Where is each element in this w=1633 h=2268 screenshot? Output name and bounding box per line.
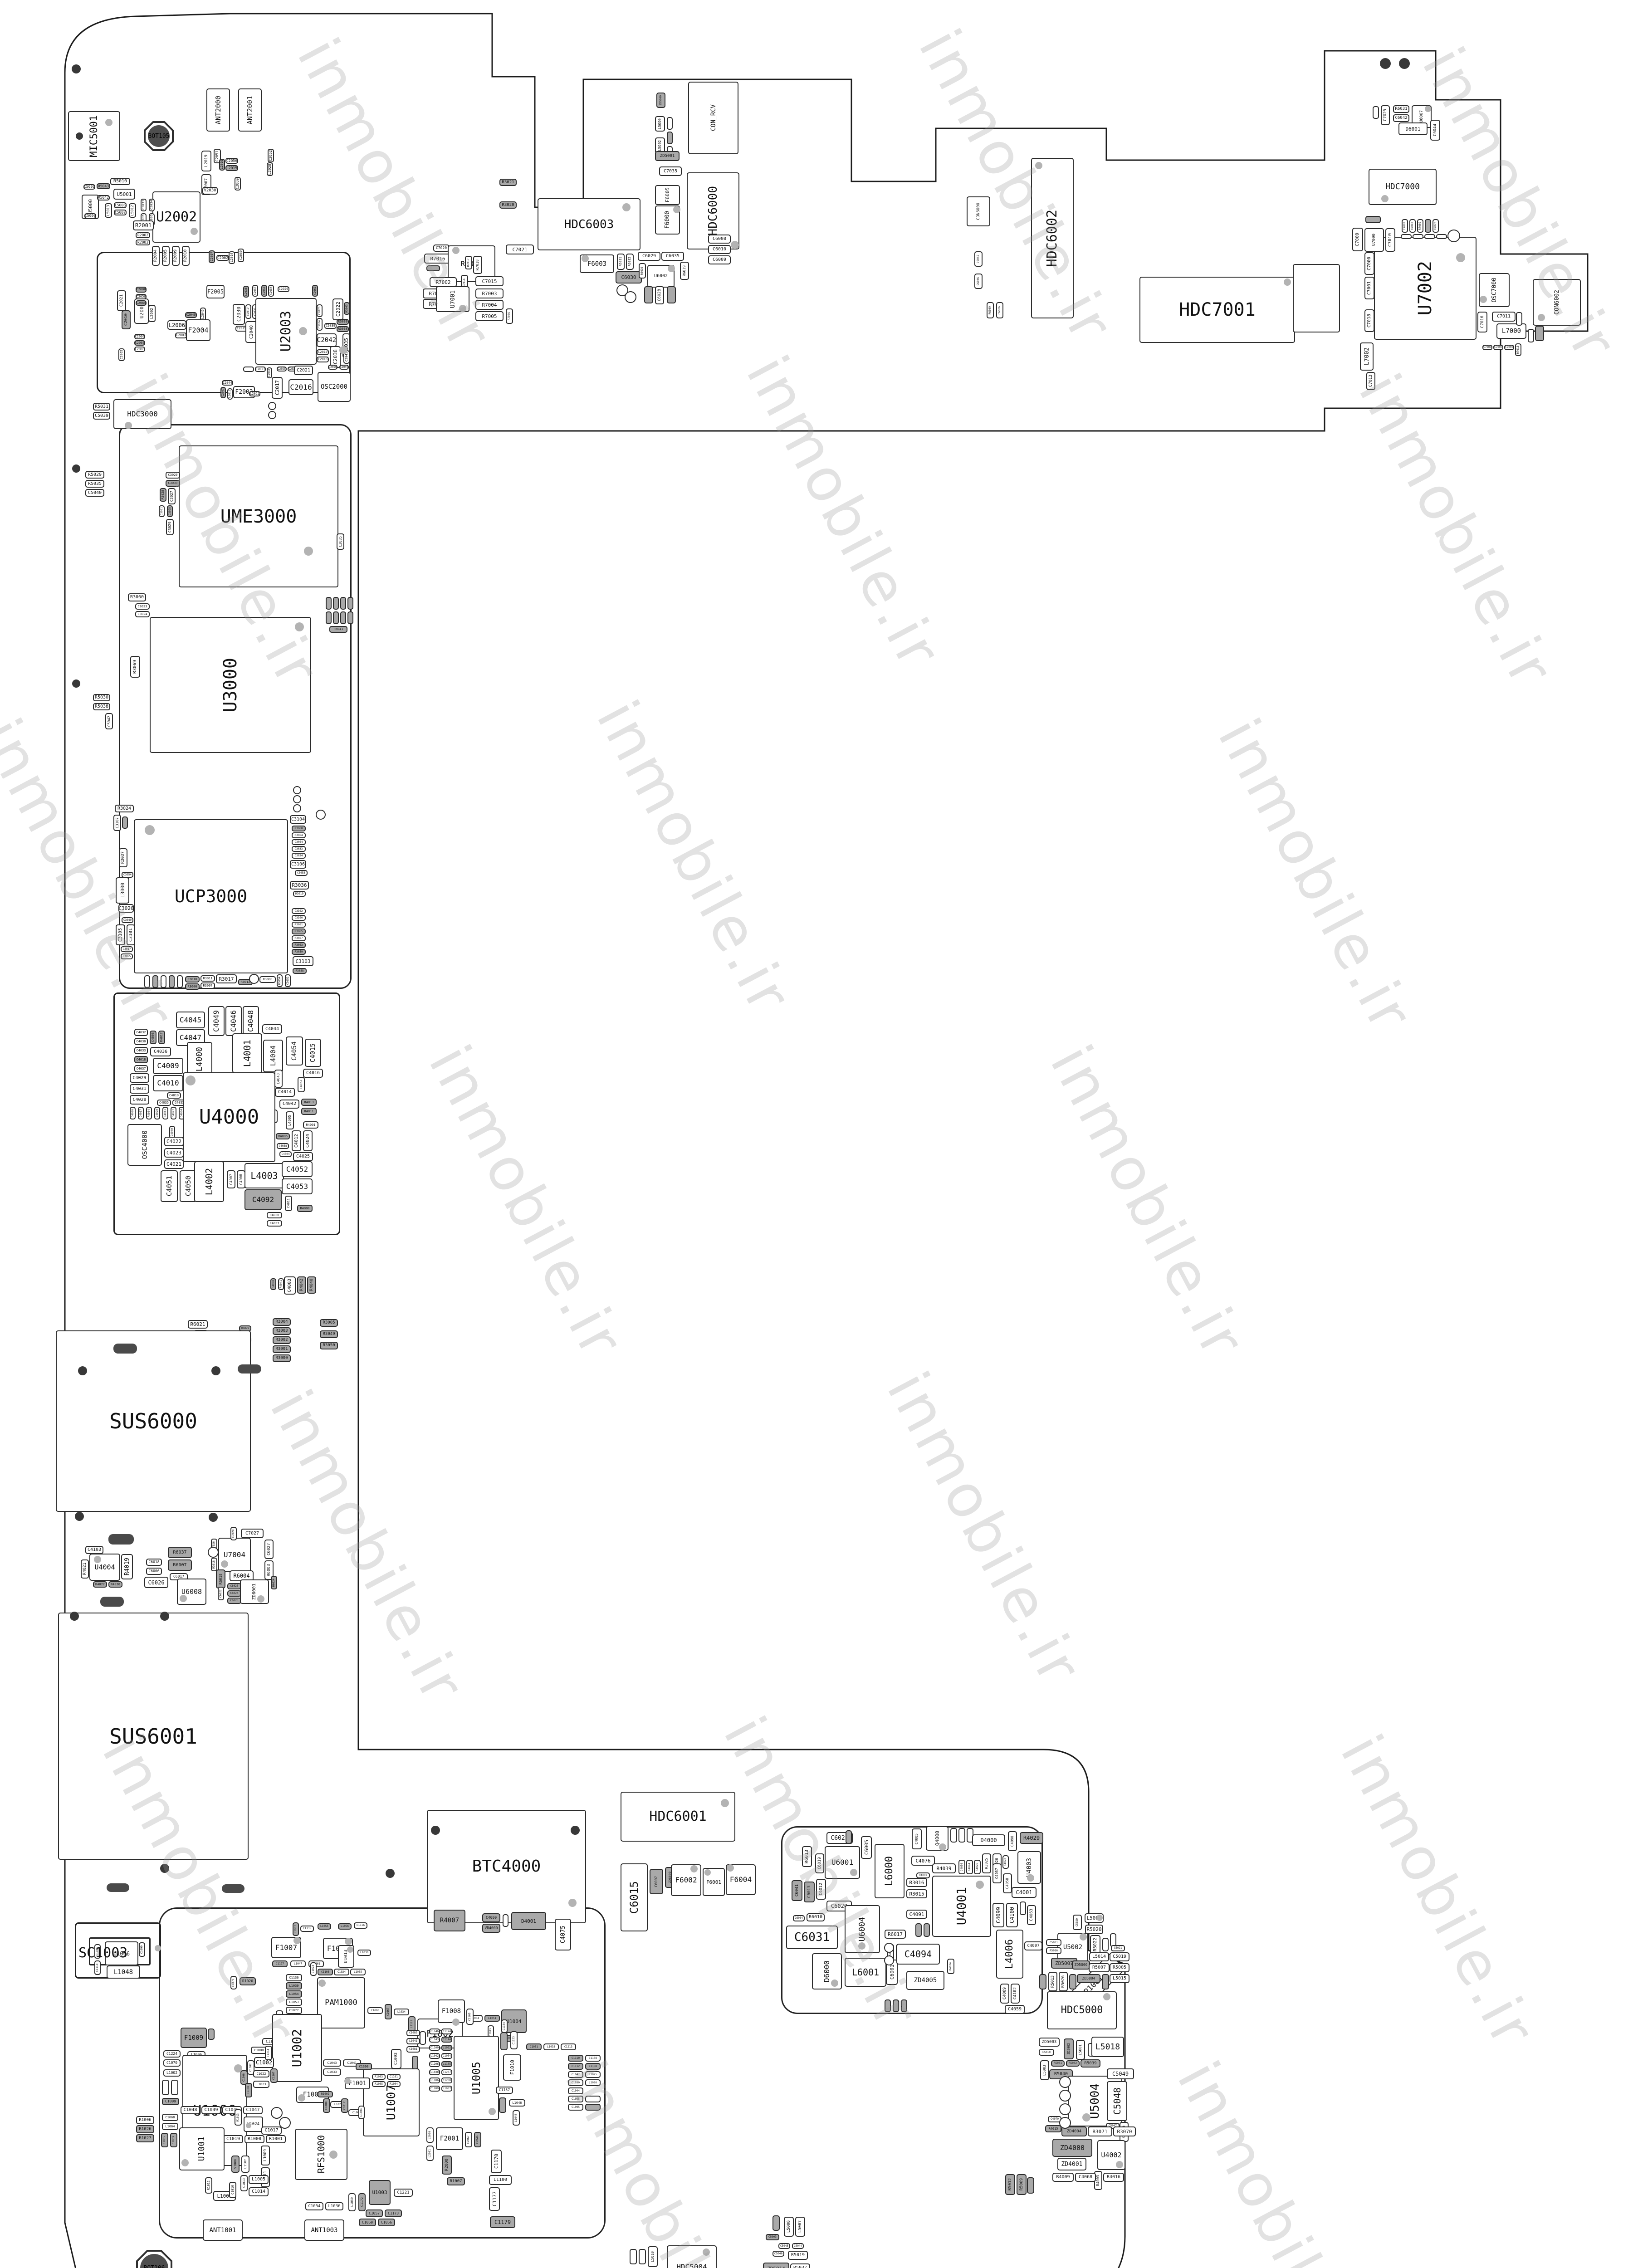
- component-R6010: R6010: [807, 1913, 825, 1921]
- component-label: C7025: [1384, 109, 1388, 121]
- component-label: C4003: [288, 1279, 292, 1292]
- component-label: R3004: [275, 1320, 288, 1324]
- fiducial-dot: [1080, 1933, 1087, 1941]
- component-label: R4006: [278, 1135, 288, 1138]
- component-label: R7013: [1517, 346, 1520, 354]
- component-label: C7021: [512, 247, 527, 252]
- component-label: R5041: [333, 628, 343, 631]
- fiducial-dot: [1103, 1993, 1110, 2000]
- component-label: L1034: [397, 2011, 406, 2014]
- component-label: L5008: [787, 2220, 791, 2233]
- component-R4011: R4011: [301, 1108, 317, 1115]
- component-label: C1172: [361, 2197, 364, 2207]
- component-label: C5040: [88, 491, 102, 495]
- component-label: ZD5001: [660, 154, 675, 158]
- component-label: C1024: [337, 1971, 346, 1974]
- component-R5026: R5026: [1059, 1972, 1068, 1991]
- component-C4007: C4007: [227, 1170, 235, 1188]
- component-label: R4042: [300, 1279, 304, 1291]
- component-label: C3029: [168, 474, 177, 477]
- component-label: R4024: [968, 1863, 971, 1871]
- component-R4007: R4007: [434, 1910, 465, 1931]
- component-label: C7006: [1505, 346, 1513, 349]
- component-R6031: R6031: [617, 254, 625, 270]
- component-label: C1089: [409, 2032, 417, 2034]
- component-label: R3015: [909, 1892, 924, 1897]
- component-label: C6017: [173, 1575, 184, 1579]
- component-label: R3059: [294, 951, 303, 953]
- component-label: C3104: [291, 817, 305, 822]
- component-R4039: R4039: [932, 1863, 956, 1873]
- component-label: F6002: [675, 1877, 697, 1884]
- fiducial-dot: [191, 228, 198, 235]
- component-label: L2000: [429, 2131, 431, 2139]
- fiducial-dot: [489, 2108, 496, 2115]
- component-label: C4061: [300, 1080, 303, 1089]
- component-label: C2040: [186, 313, 196, 317]
- component-R4034: R4034: [947, 1959, 954, 1974]
- component-R4004: R4004: [146, 1107, 152, 1119]
- component-label: C1077: [289, 2009, 298, 2012]
- component: [1069, 1974, 1076, 1989]
- component-label: C4021: [166, 1162, 181, 1167]
- component-C1014: C1014: [249, 2187, 269, 2196]
- component-C7006: C7006: [1504, 345, 1514, 350]
- component-C4028: C4028: [130, 1095, 149, 1105]
- component-label: L5007: [798, 2220, 802, 2233]
- component-C6013: C6013: [804, 1882, 815, 1902]
- component-R4041: R4041: [278, 1278, 284, 1290]
- component-C4009: C4009: [153, 1058, 183, 1074]
- component-label: D6001: [1405, 127, 1420, 132]
- component-C5049: C5049: [1107, 2068, 1134, 2079]
- component-label: C1068: [165, 2116, 175, 2119]
- component-label: C1179: [494, 2219, 511, 2225]
- component-C3102: C3102: [292, 908, 306, 914]
- component-label: C4027: [172, 1109, 175, 1117]
- component-label: R3060: [130, 595, 144, 600]
- component-C3104: C3104: [290, 815, 306, 824]
- component-label: C1146: [430, 2030, 439, 2033]
- via: [1059, 2090, 1071, 2102]
- component-L5015: L5015: [1110, 1974, 1129, 1983]
- via: [279, 2117, 291, 2129]
- via: [1059, 2117, 1071, 2129]
- component-label: R2002: [137, 234, 148, 237]
- fiducial-dot: [1381, 195, 1389, 202]
- component-label: R6031: [619, 257, 622, 266]
- component-C6005: C6005: [861, 1836, 872, 1859]
- component-R3067: R3067: [292, 935, 306, 941]
- component-label: C1307: [273, 2072, 275, 2080]
- component-label: C4094: [905, 1950, 932, 1959]
- component-label: C2018: [318, 358, 328, 361]
- component-R1012: R1012: [205, 2177, 212, 2194]
- component-label: L1051: [488, 2017, 496, 2020]
- fiducial-dot: [939, 1843, 946, 1851]
- component-label: C4031: [132, 1087, 146, 1091]
- fiducial-dot: [452, 247, 460, 254]
- component-label: C6035: [666, 254, 680, 259]
- component-V1000: V1000: [231, 2156, 240, 2173]
- component-label: L1037: [443, 2087, 451, 2090]
- component-label: R5002: [1069, 2062, 1077, 2065]
- component-C1030: C1030: [568, 2079, 583, 2086]
- component-label: C2021: [297, 368, 310, 373]
- mount-hole: [72, 64, 81, 73]
- component-HDC3000: HDC3000: [113, 399, 171, 429]
- component-label: R3010: [187, 978, 197, 981]
- component-C1055: C1055: [568, 2096, 583, 2102]
- component-label: C1105: [469, 2013, 471, 2021]
- component-C4063: C4063: [1027, 1905, 1036, 1925]
- component-C1144: C1144: [441, 2037, 452, 2043]
- component-R3049: R3049: [320, 1330, 338, 1338]
- component-ZD4001: ZD4001: [1057, 2158, 1086, 2170]
- component-label: ZD4000: [1060, 2145, 1085, 2151]
- component-R3060: R3060: [128, 593, 146, 601]
- component-label: R4037: [269, 1222, 279, 1225]
- component-label: U4000: [199, 1107, 259, 1127]
- component-C1044: C1044: [568, 2087, 583, 2094]
- component-C1170: C1170: [491, 2150, 502, 2173]
- component-label: R1007: [450, 2180, 462, 2184]
- component: [639, 2249, 646, 2264]
- component-C7007: C7007: [1493, 345, 1503, 350]
- component-C1067: C1067: [385, 2004, 392, 2019]
- component-label: L1039: [289, 1984, 298, 1988]
- component-label: R1013: [237, 2113, 240, 2121]
- component-label: C2057: [254, 287, 257, 295]
- component-label: C2006: [135, 335, 144, 338]
- component-label: R3001: [275, 1347, 288, 1351]
- component-label: R3071: [1092, 2129, 1107, 2134]
- component-C1069: C1069: [170, 2133, 177, 2147]
- component-R4021: R4021: [81, 1559, 89, 1579]
- component-label: U1007: [386, 2085, 397, 2120]
- label-SC1003: SC1003: [78, 1945, 127, 1961]
- component-C7021: C7021: [506, 244, 534, 254]
- component: [585, 2096, 601, 2102]
- component-C4045: C4045: [176, 1012, 205, 1028]
- component-label: R5001: [1054, 2062, 1062, 2065]
- component-BTC4000: BTC4000: [427, 1810, 586, 1923]
- fiducial-dot: [339, 346, 347, 354]
- component-label: C2012: [247, 308, 250, 316]
- component-label: C2066: [135, 342, 144, 345]
- component-C4026: C4026: [130, 1107, 136, 1119]
- component-label: R5038: [95, 704, 108, 709]
- component-label: L2021: [250, 392, 259, 396]
- component-label: C1300: [359, 2065, 368, 2068]
- component-C2067: C2067: [465, 2132, 472, 2147]
- connector-pad: [113, 1344, 137, 1354]
- component-C3105: C3105: [116, 924, 125, 945]
- component-C3029: C3029: [166, 472, 180, 479]
- component-label: L6001: [852, 1968, 879, 1977]
- fiducial-dot: [234, 2064, 242, 2072]
- component-F2004: F2004: [186, 319, 210, 341]
- component-C6045: C6045: [974, 251, 983, 267]
- component-C4033: C4033: [134, 1047, 148, 1054]
- component-label: L1023: [256, 2083, 266, 2086]
- component-label: R3000: [263, 978, 272, 981]
- component-label: C1019: [226, 2137, 240, 2141]
- component-label: C2050: [328, 366, 337, 369]
- component-C5039: C5039: [93, 412, 110, 420]
- component-label: R6030: [641, 267, 644, 275]
- fiducial-dot: [1425, 106, 1431, 112]
- component-C1116: C1116: [354, 1922, 367, 1929]
- component-label: C1044: [572, 2090, 580, 2092]
- component-label: C6005: [864, 1840, 869, 1855]
- component-L2000: L2000: [426, 2127, 434, 2143]
- component-label: L1125: [411, 2020, 413, 2028]
- component-label: L5015: [1113, 1976, 1126, 1981]
- component-label: C2043: [268, 369, 271, 377]
- mount-hole: [72, 464, 80, 473]
- component-label: C1136: [289, 1976, 298, 1980]
- component-C2055: C2055: [261, 285, 267, 297]
- component-R3003: R3003: [273, 1327, 291, 1335]
- component-label: C2021: [120, 294, 124, 307]
- component-label: C4019: [169, 1094, 179, 1097]
- component-R3021: R3021: [499, 179, 517, 186]
- component-label: C4063: [1030, 1909, 1034, 1921]
- component-label: C4035: [159, 1101, 169, 1105]
- component: [326, 597, 332, 610]
- component-ZD4005: ZD4005: [906, 1971, 944, 1990]
- component-label: C5045: [780, 2245, 788, 2248]
- component-L1047: L1047: [290, 1960, 306, 1967]
- component-label: C7020: [436, 246, 447, 250]
- component: [585, 2104, 601, 2111]
- component-label: R6032: [628, 257, 631, 266]
- component-C6042: C6042: [1393, 114, 1409, 122]
- component-L5007: L5007: [795, 2217, 805, 2237]
- component-R2009: R2009: [172, 246, 180, 266]
- component-label: C1030: [572, 2082, 580, 2084]
- component-C4100: C4100: [1006, 1903, 1018, 1927]
- component: [1516, 312, 1522, 326]
- component-R3007: R3007: [200, 982, 215, 989]
- component-C2060: C2060: [238, 249, 244, 262]
- component-label: HDC6003: [564, 219, 614, 230]
- component-label: C6013: [807, 1886, 812, 1898]
- component-label: C5006: [115, 204, 126, 207]
- component: [1425, 219, 1431, 233]
- component-label: U1002: [291, 2029, 303, 2067]
- component-label: R3038: [338, 327, 347, 331]
- component-C4053: C4053: [282, 1178, 313, 1194]
- component-label: R6009: [989, 306, 992, 314]
- component-label: C1017: [264, 2128, 278, 2133]
- component-C3023: C3023: [135, 603, 150, 610]
- component-label: C7027: [245, 1531, 259, 1536]
- component: [1413, 234, 1423, 239]
- component-C4042: C4042: [279, 1100, 299, 1109]
- component-label: C1161: [390, 2076, 398, 2078]
- component-L2006: L2006: [167, 320, 186, 330]
- component-C5040: C5040: [85, 489, 104, 497]
- component-C1060: C1060: [359, 2219, 376, 2226]
- component-C1047: C1047: [243, 2106, 263, 2114]
- component-C1013: C1013: [240, 2175, 248, 2191]
- component-C1019: C1019: [223, 2135, 243, 2143]
- component: [347, 597, 353, 610]
- component-L1048: L1048: [107, 1965, 140, 1979]
- component-label: ZD4004: [1067, 2130, 1082, 2134]
- component-C3033: C3033: [292, 846, 306, 852]
- component-label: C1012: [343, 2102, 346, 2110]
- component-R1006: R1006: [136, 2116, 154, 2124]
- component-label: L1047: [294, 1963, 302, 1965]
- mount-hole: [431, 1826, 440, 1835]
- component-label: R2000: [445, 2159, 449, 2171]
- component-C6024: C6024: [227, 1590, 241, 1597]
- component-label: L1188: [589, 2065, 597, 2068]
- component-label: ANT2000: [215, 96, 222, 124]
- component-label: R5029: [88, 473, 102, 477]
- component-C1095: C1095: [568, 2104, 583, 2111]
- component-R3043: R3043: [344, 302, 350, 315]
- component-label: C3053: [297, 872, 305, 875]
- component-U1003: U1003: [369, 2180, 391, 2205]
- component-ZD5004: ZD5004: [1077, 1974, 1100, 1983]
- component-R5031: R5031: [93, 403, 110, 411]
- component-label: C3023: [137, 605, 147, 608]
- component-UME3000: UME3000: [179, 445, 338, 587]
- component-label: C7011: [1497, 314, 1511, 319]
- component: [426, 265, 440, 271]
- component-label: R3063: [294, 944, 303, 947]
- component-R1005: R1005: [372, 2081, 386, 2087]
- component-L1004: L1004: [358, 2106, 365, 2119]
- via: [208, 1547, 219, 1558]
- component-label: ZD4001: [1061, 2161, 1083, 2167]
- component-label: L1107: [244, 2159, 247, 2169]
- component-label: R5037: [793, 2266, 807, 2268]
- component-label: R3069: [133, 660, 137, 674]
- component-label: C6009: [713, 258, 726, 262]
- component-label: C4032: [136, 1031, 146, 1034]
- component-label: C4090: [1011, 1836, 1014, 1847]
- component-L2015: L2015: [225, 165, 238, 171]
- component-C7000: C7000: [1364, 252, 1374, 275]
- component-label: C1138: [589, 2057, 597, 2060]
- component-C6036: C6036: [996, 302, 1003, 318]
- component-label: ANT1003: [311, 2227, 337, 2234]
- component-C1093: C1093: [391, 2049, 401, 2069]
- component: [772, 2215, 780, 2231]
- component-C4019: C4019: [167, 1092, 181, 1099]
- component-label: R3005: [323, 1321, 335, 1325]
- component-label: C4014: [278, 1090, 292, 1095]
- component-C7025: C7025: [1381, 105, 1390, 125]
- component-C7016: C7016: [1477, 312, 1487, 332]
- component-label: SUS6000: [109, 1411, 197, 1432]
- component-R4038: R4038: [270, 1278, 276, 1290]
- component-C3034: C3034: [317, 318, 323, 331]
- component-C3026: C3026: [118, 904, 134, 913]
- component-label: R5013: [1051, 1975, 1055, 1988]
- component-label: R5043: [98, 185, 109, 188]
- component-C1043: C1043: [323, 2059, 341, 2067]
- mount-hole: [76, 132, 83, 140]
- component-R7010: R7010: [1409, 219, 1416, 233]
- component-UCP3000: UCP3000: [134, 819, 288, 973]
- component-ZD5001: ZD5001: [655, 151, 680, 161]
- component: [924, 1923, 930, 1937]
- component-label: C3034: [318, 320, 321, 328]
- component-label: C1014: [252, 2190, 265, 2194]
- component-U5001: U5001: [113, 189, 135, 200]
- component-R4016: R4016: [1103, 2173, 1124, 2182]
- mount-hole: [209, 1513, 218, 1522]
- component-L1055: L1055: [318, 1923, 331, 1930]
- component-L5014: L5014: [1089, 1952, 1109, 1961]
- component-label: ZD4005: [914, 1977, 937, 1984]
- component-label: C6025: [230, 1599, 238, 1602]
- component-label: C7016: [1481, 316, 1485, 328]
- component-R4001: R4001: [303, 1121, 318, 1129]
- component-label: R7017: [467, 259, 470, 267]
- component-R4022: R4022: [93, 1581, 107, 1588]
- component-C5007: C5007: [114, 210, 127, 215]
- component-L1026: L1026: [585, 2079, 601, 2086]
- component-L1009: L1009: [261, 2146, 270, 2165]
- component-CON6000: CON6000: [967, 196, 990, 226]
- component-C3028: C3028: [167, 505, 173, 517]
- component-label: C1170: [494, 2154, 499, 2169]
- component-label: C6026: [148, 1580, 164, 1585]
- component-L1033: L1033: [543, 2043, 559, 2050]
- component-label: L4006: [1005, 1939, 1015, 1969]
- component-C2018: C2018: [317, 357, 329, 362]
- component-label: C3054: [123, 874, 132, 876]
- component-label: L4000: [196, 1047, 204, 1071]
- component-C2044: C2044: [222, 380, 233, 386]
- component-C2062: C2062: [312, 285, 318, 297]
- fiducial-dot: [673, 206, 680, 213]
- component-U1002: U1002: [272, 2014, 322, 2082]
- component-R6009: R6009: [987, 302, 994, 318]
- component-label: C3106: [291, 862, 305, 867]
- component-label: ZD5000: [660, 95, 662, 105]
- component-R5030: R5030: [93, 694, 110, 701]
- component-C3035: C3035: [337, 533, 344, 550]
- component-C6015: C6015: [621, 1863, 648, 1931]
- component-label: C4068: [1079, 2175, 1092, 2180]
- component-R1007: R1007: [447, 2177, 465, 2185]
- component-label: CON6000: [977, 203, 981, 220]
- component: [208, 2028, 215, 2040]
- component-label: C1127: [276, 1963, 284, 1965]
- component-label: C1002: [256, 2060, 272, 2065]
- component-label: ZD5004: [1082, 1977, 1095, 1980]
- component-label: L1041: [409, 2040, 417, 2043]
- component-ANT1003: ANT1003: [304, 2219, 344, 2241]
- component-C4016: C4016: [303, 1069, 323, 1078]
- component-label: C2056: [226, 159, 237, 163]
- component-label: L2011: [229, 390, 231, 398]
- component-C5003: C5003: [766, 2234, 779, 2240]
- component-label: R4021: [83, 1563, 87, 1575]
- component-label: R1004: [390, 2083, 398, 2086]
- component-C4011: C4011: [285, 1196, 292, 1211]
- component-C6009: C6009: [708, 255, 731, 264]
- component-C4018: C4018: [134, 1056, 148, 1063]
